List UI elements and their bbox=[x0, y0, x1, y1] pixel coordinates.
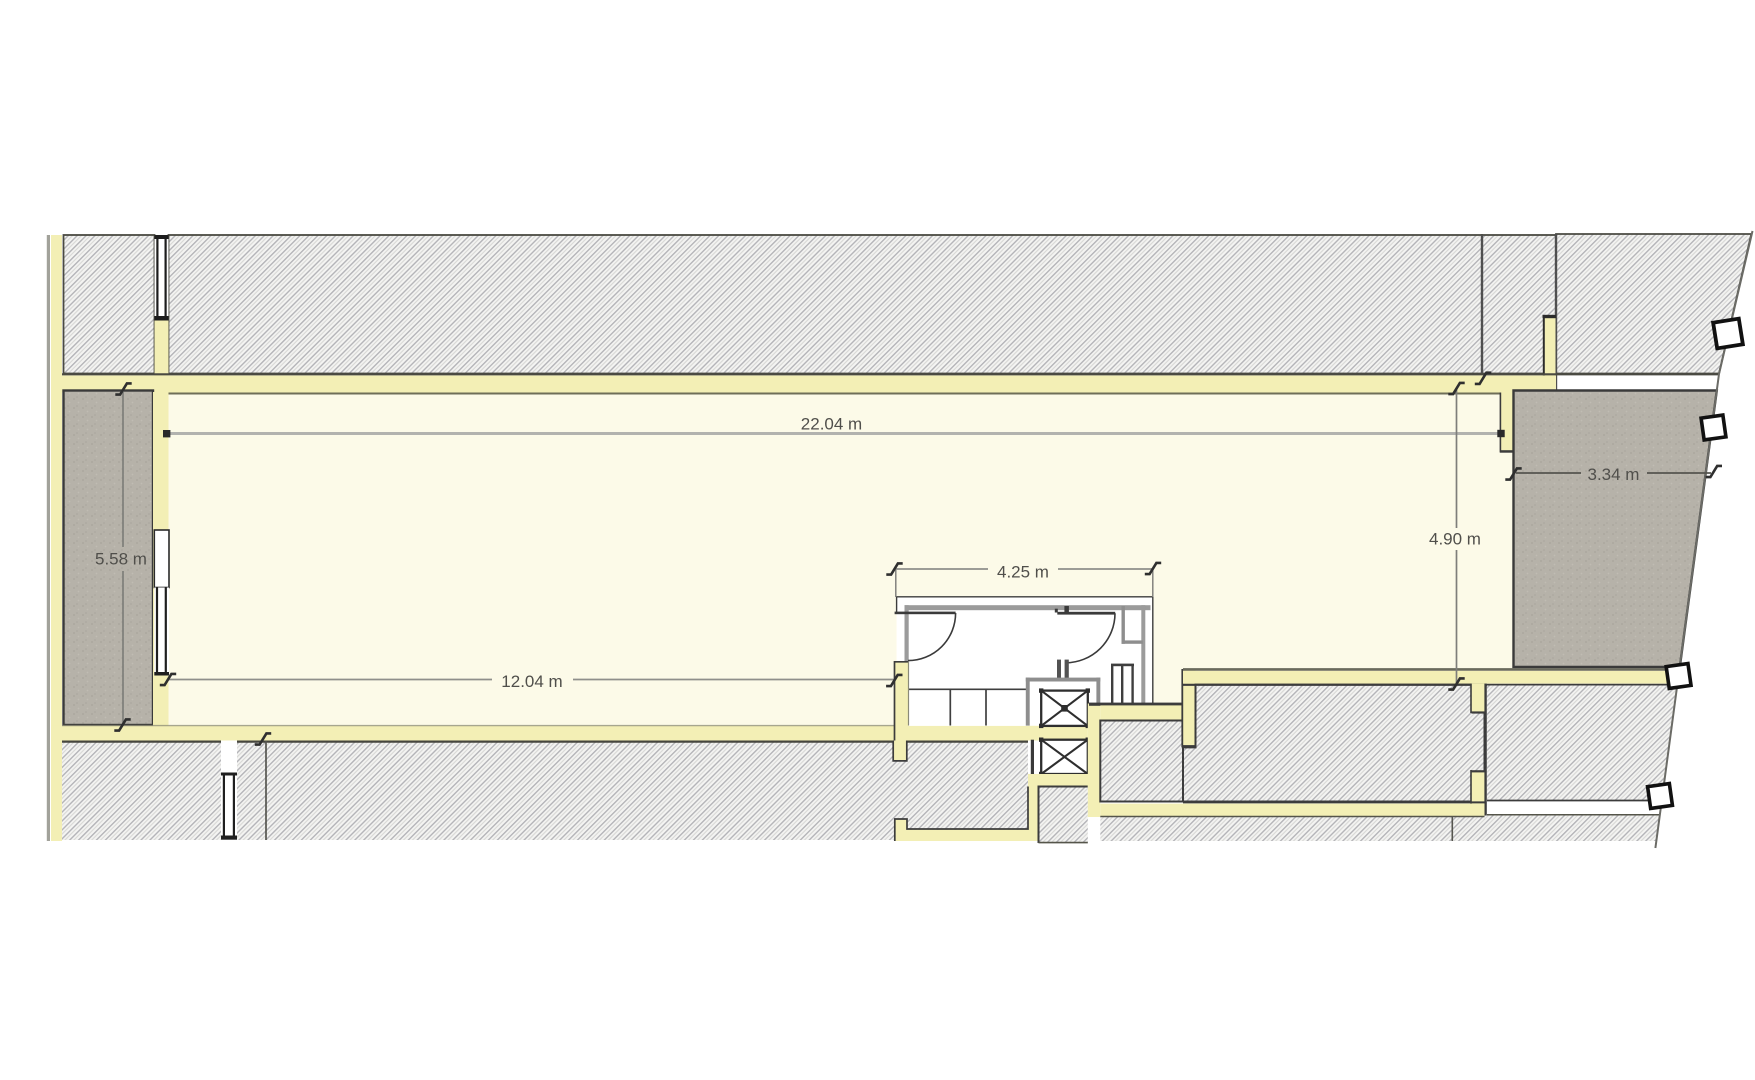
svg-text:22.04 m: 22.04 m bbox=[801, 415, 862, 434]
svg-text:4.90 m: 4.90 m bbox=[1429, 530, 1481, 549]
svg-text:4.25 m: 4.25 m bbox=[997, 563, 1049, 582]
svg-text:12.04 m: 12.04 m bbox=[501, 672, 562, 691]
svg-text:3.34 m: 3.34 m bbox=[1588, 465, 1640, 484]
svg-text:5.58 m: 5.58 m bbox=[95, 550, 147, 569]
